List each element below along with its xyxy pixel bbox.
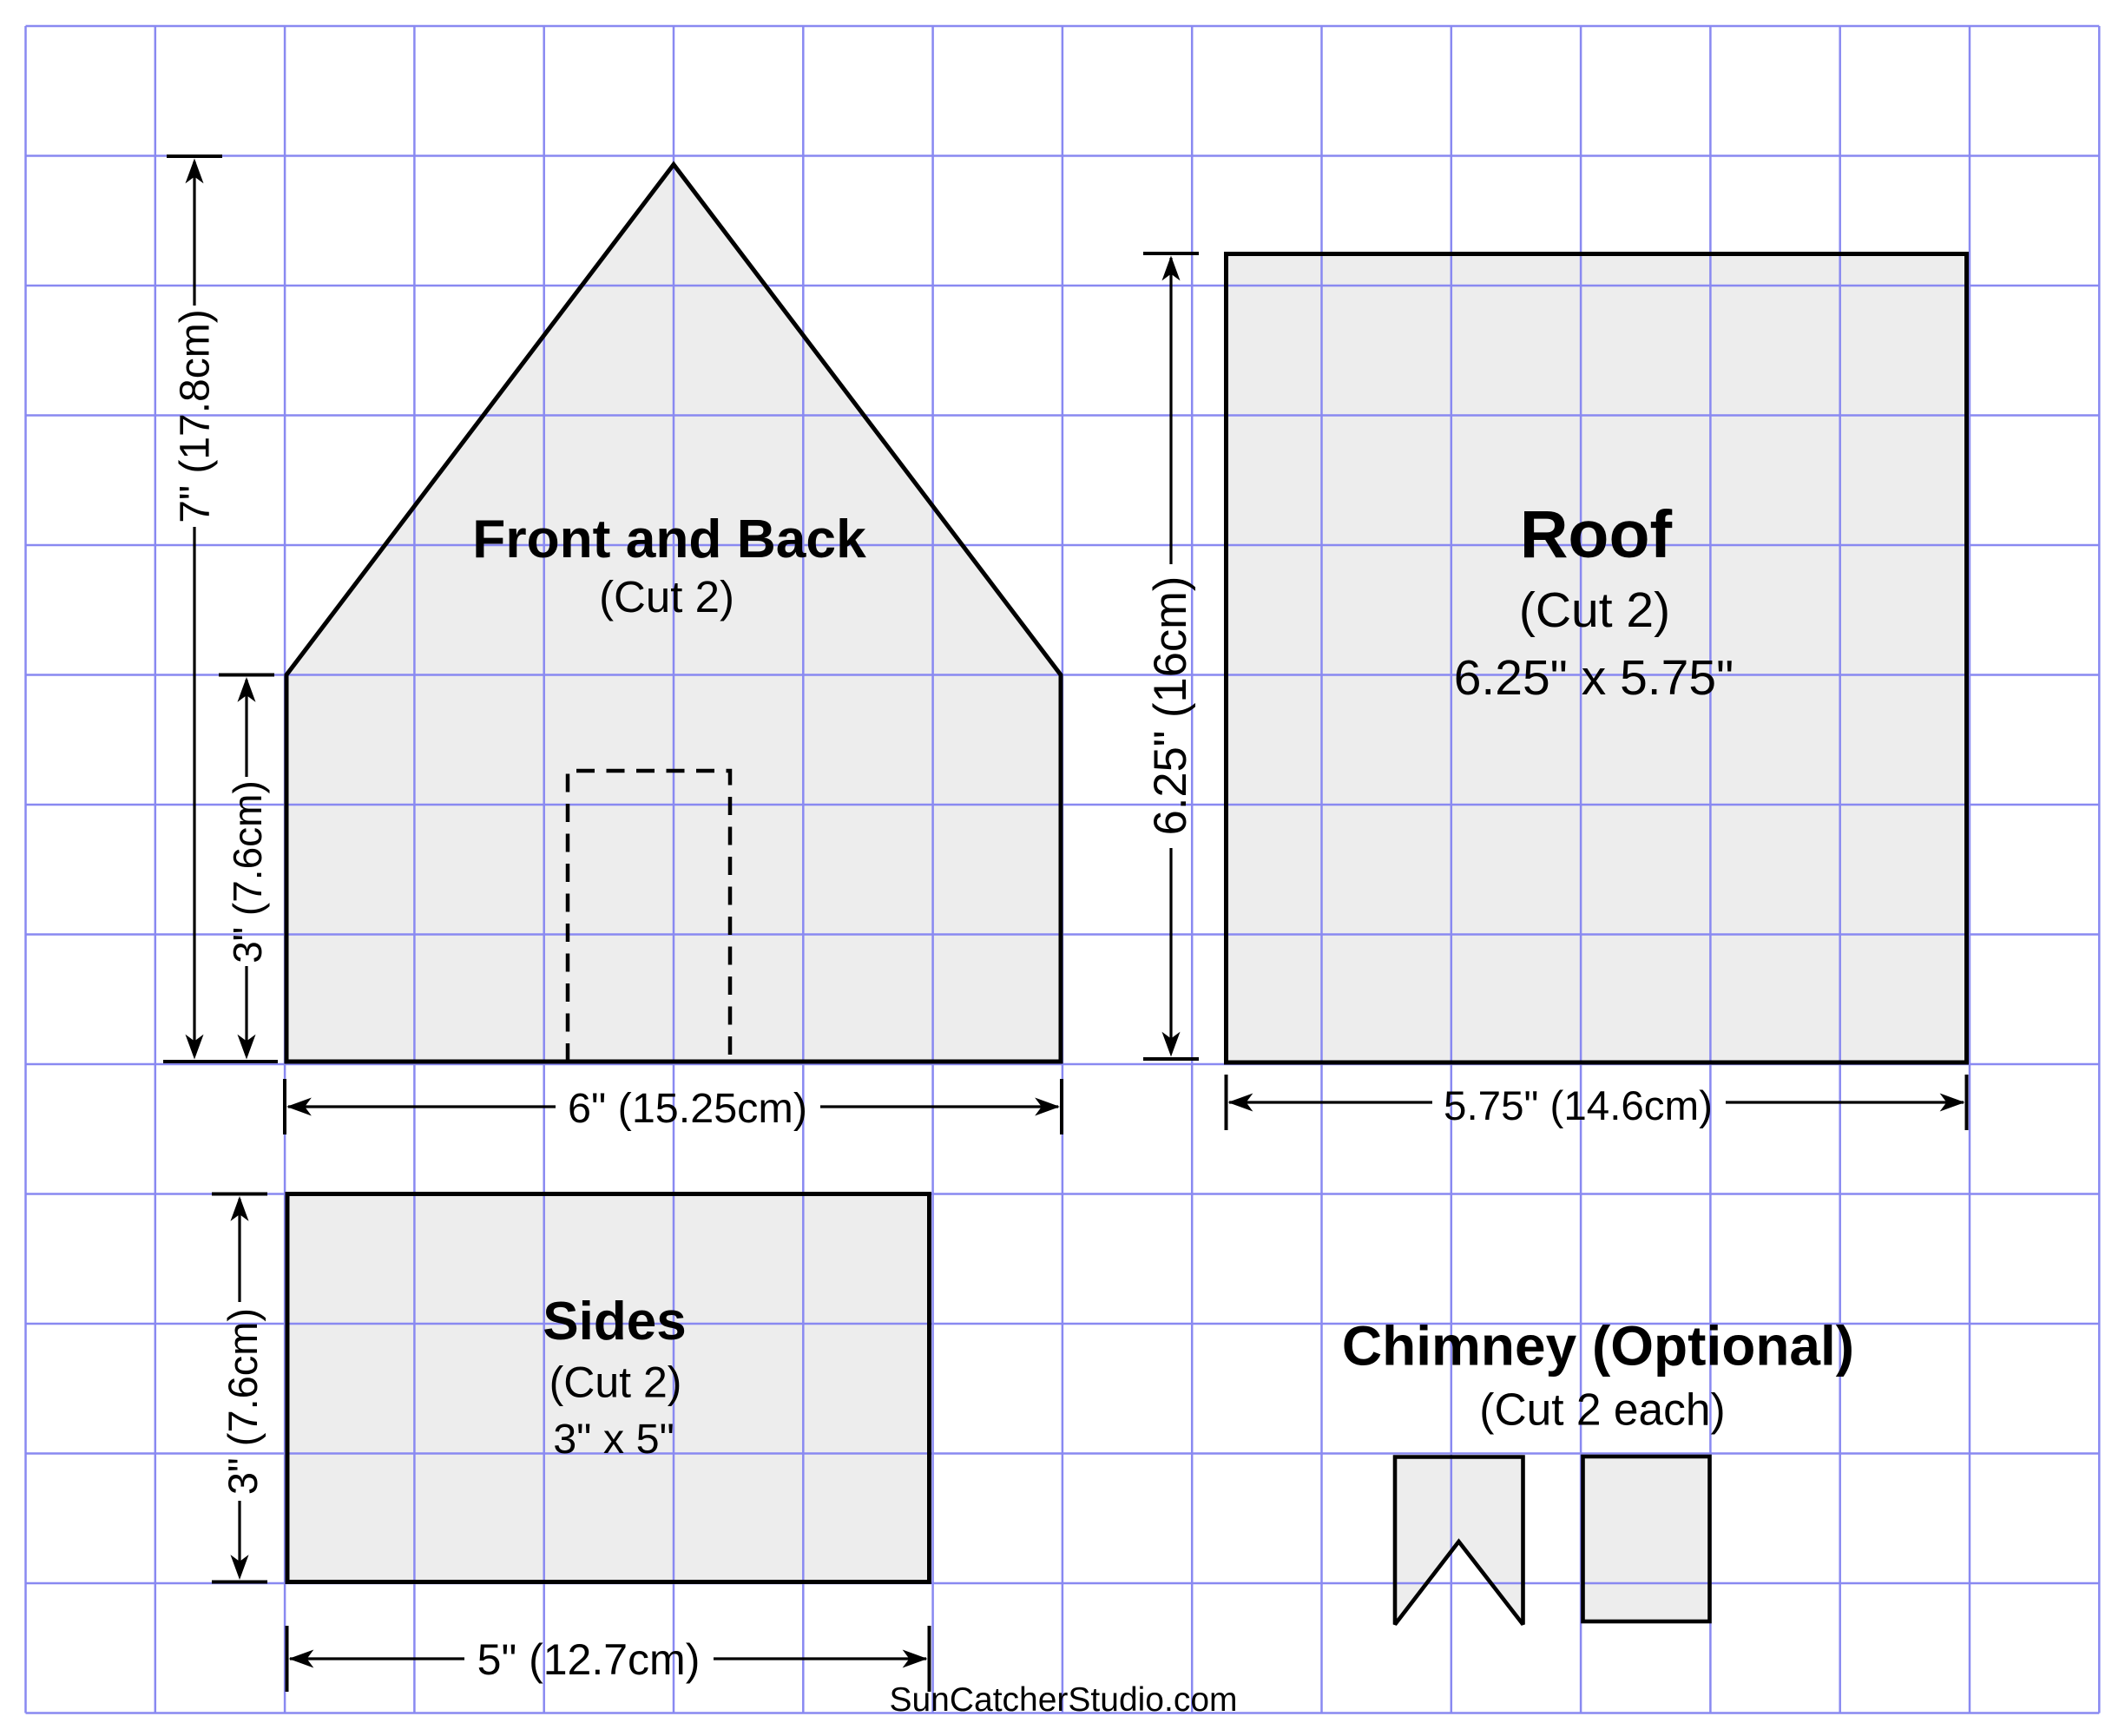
svg-text:3" x 5": 3" x 5" <box>553 1416 674 1463</box>
svg-text:Roof: Roof <box>1520 497 1673 572</box>
svg-text:6.25" x 5.75": 6.25" x 5.75" <box>1454 650 1734 706</box>
svg-text:Chimney (Optional): Chimney (Optional) <box>1342 1315 1854 1378</box>
svg-text:(Cut 2): (Cut 2) <box>549 1358 682 1407</box>
svg-text:5" (12.7cm): 5" (12.7cm) <box>477 1635 701 1684</box>
svg-text:SunCatcherStudio.com: SunCatcherStudio.com <box>889 1681 1237 1719</box>
svg-text:3" (7.6cm): 3" (7.6cm) <box>225 780 270 963</box>
svg-text:6.25" (16cm): 6.25" (16cm) <box>1145 576 1196 836</box>
svg-text:(Cut 2): (Cut 2) <box>599 572 734 621</box>
svg-text:Front and Back: Front and Back <box>472 510 866 569</box>
svg-text:5.75" (14.6cm): 5.75" (14.6cm) <box>1444 1083 1713 1129</box>
svg-text:(Cut 2 each): (Cut 2 each) <box>1479 1384 1725 1435</box>
svg-text:Sides: Sides <box>543 1292 686 1351</box>
svg-text:(Cut 2): (Cut 2) <box>1519 582 1670 638</box>
svg-text:3" (7.6cm): 3" (7.6cm) <box>220 1308 266 1495</box>
svg-text:7" (17.8cm): 7" (17.8cm) <box>172 309 218 523</box>
svg-text:6" (15.25cm): 6" (15.25cm) <box>568 1085 807 1132</box>
